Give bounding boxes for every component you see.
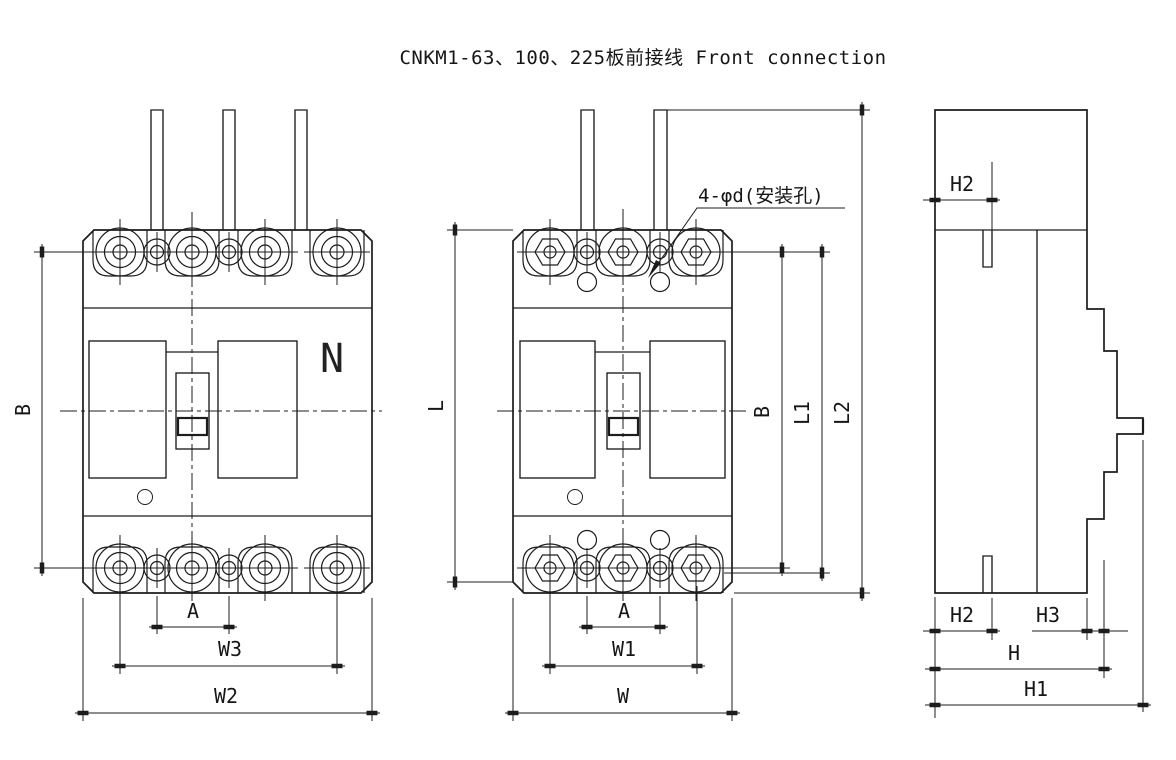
face-panels (89, 341, 297, 478)
leader-line (650, 208, 845, 275)
dim-label-b: B (750, 406, 774, 418)
mounting-hole (651, 273, 670, 292)
front-view-4pole: N B A W3 W2 (11, 110, 382, 721)
dim-label-l2: L2 (830, 401, 854, 425)
case-seam-lines (935, 230, 1087, 593)
dimensions: B A W3 W2 (11, 244, 380, 721)
terminal-hex (663, 219, 729, 285)
drawing-sheet: CNKM1-63、100、225板前接线 Front connection (0, 0, 1176, 760)
dim-label-w1: W1 (612, 637, 636, 661)
trip-button (568, 490, 583, 505)
terminal-large (232, 535, 298, 601)
screw-bosses (983, 230, 992, 593)
dim-b-lines (34, 244, 90, 576)
drawing-title: CNKM1-63、100、225板前接线 Front connection (399, 47, 886, 69)
engineering-drawing: CNKM1-63、100、225板前接线 Front connection (0, 0, 1176, 760)
terminal-tabs (581, 110, 667, 230)
mounting-hole (578, 273, 597, 292)
drawing-root: CNKM1-63、100、225板前接线 Front connection (11, 47, 1151, 721)
dim-label-h2-top: H2 (950, 172, 974, 196)
dim-label-a: A (187, 599, 199, 623)
dim-label-w3: W3 (218, 637, 242, 661)
dim-label-w: W (617, 684, 630, 708)
center-lines (60, 212, 382, 587)
mounting-note-text: 4-φd(安装孔) (698, 185, 824, 207)
dim-l2-lines (667, 102, 870, 601)
terminal-tabs (151, 110, 307, 230)
terminals-top-row (87, 219, 370, 285)
terminal-large (232, 219, 298, 285)
side-view: H2 H2 H3 H H1 (923, 110, 1151, 718)
dim-b-lines (724, 244, 830, 576)
dim-label-h: H (1008, 641, 1020, 665)
mounting-hole (578, 531, 597, 550)
dim-label-h3: H3 (1036, 603, 1060, 627)
dim-label-l1: L1 (790, 401, 814, 425)
dim-label-h2-bottom: H2 (950, 603, 974, 627)
terminal-large-neutral (304, 219, 370, 285)
trip-button (138, 490, 153, 505)
dim-label-w2: W2 (214, 684, 238, 708)
dim-l1-lines (724, 244, 830, 581)
mounting-hole (651, 531, 670, 550)
terminals-bottom-row (87, 535, 370, 601)
dim-label-h1: H1 (1024, 677, 1048, 701)
dim-label-a: A (618, 599, 630, 623)
ext-lines (935, 162, 1143, 718)
front-view-3pole: 4-φd(安装孔) L B L1 L2 A (424, 102, 870, 721)
terminal-hex (663, 535, 729, 601)
dim-label-b: B (11, 404, 35, 416)
dim-label-l: L (424, 400, 448, 412)
neutral-pole-label: N (320, 336, 344, 382)
mounting-note: 4-φd(安装孔) (648, 185, 845, 278)
dim-l-lines (447, 222, 513, 590)
